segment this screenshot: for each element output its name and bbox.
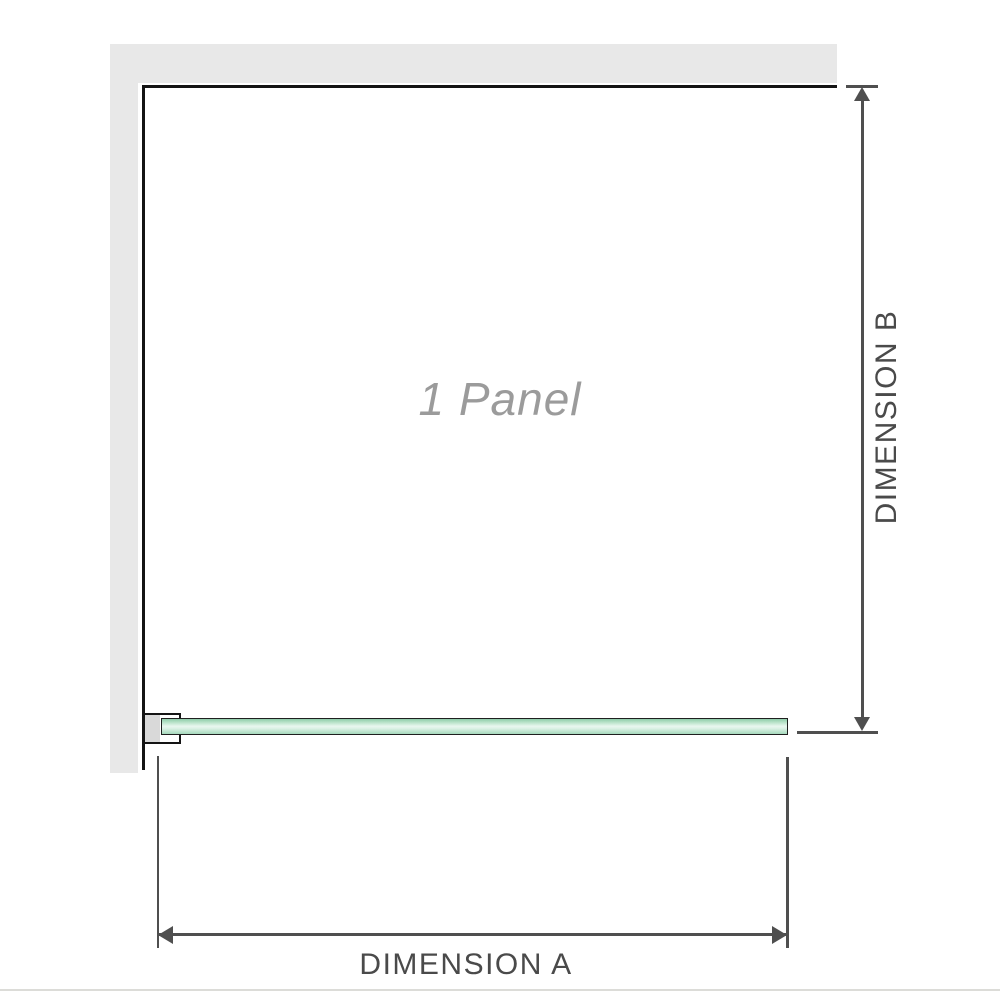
- dimension-b-line: [861, 100, 864, 719]
- wall-left-strip: [110, 44, 138, 773]
- footer-divider: [0, 989, 1000, 991]
- panel-outline-left-edge: [142, 85, 145, 770]
- glass-panel-bar: [161, 718, 788, 735]
- wall-top-strip: [110, 44, 837, 83]
- dimension-a-right-extension: [786, 757, 789, 948]
- panel-count-label: 1 Panel: [418, 372, 581, 426]
- dimension-a-label: DIMENSION A: [359, 948, 572, 982]
- arrow-right-icon: [772, 926, 787, 944]
- arrow-left-icon: [158, 926, 173, 944]
- arrow-down-icon: [854, 717, 870, 731]
- dimension-b-bottom-tick: [797, 731, 878, 734]
- arrow-up-icon: [854, 87, 870, 101]
- panel-dimension-diagram: 1 Panel DIMENSION B DIMENSION A: [0, 0, 1000, 1000]
- panel-outline-top-edge: [142, 85, 837, 88]
- dimension-a-line: [158, 933, 787, 936]
- dimension-b-label: DIMENSION B: [870, 310, 904, 525]
- dimension-a-left-extension: [157, 756, 160, 948]
